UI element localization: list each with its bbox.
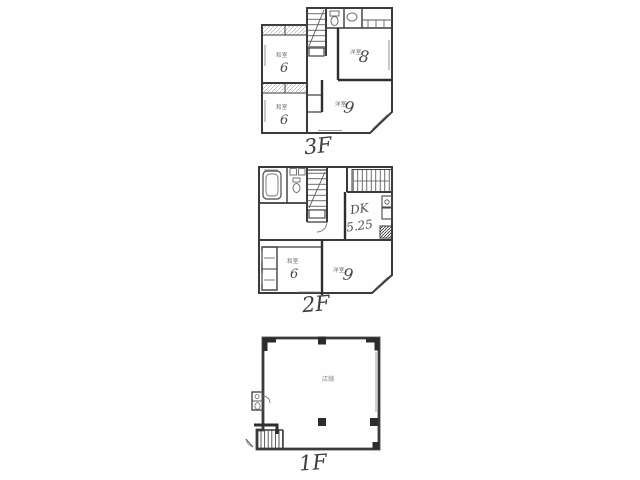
room-name-1f-store: 店舗 — [322, 375, 334, 383]
room-size-3f-washitsu-lower: 6 — [280, 113, 288, 128]
room-size-2f-yoshitsu-9: 9 — [342, 264, 355, 284]
room-size-3f-yoshitsu-8: 8 — [358, 47, 370, 67]
column-corner-top-right — [366, 338, 379, 351]
floor-label-1f: 1F — [298, 450, 329, 476]
column-corner-bottom-right — [373, 442, 380, 449]
toilet-2f — [293, 178, 300, 193]
room-size-3f-yoshitsu-9: 9 — [342, 97, 355, 117]
floor-plan-drawing: 和室 6 和室 6 洋室 8 洋室 9 3F — [0, 0, 640, 480]
stair-landing-3f — [309, 48, 324, 56]
floor-3f: 和室 6 和室 6 洋室 8 洋室 9 3F — [262, 8, 392, 159]
storage-box-2f — [380, 226, 392, 238]
stair-landing-2f — [309, 210, 325, 218]
washbasin-3f — [347, 13, 357, 21]
floor-label-2f: 2F — [300, 291, 332, 318]
stairs-1f — [257, 430, 283, 449]
stairs-2f-to-3f — [352, 170, 392, 193]
toilet-3f — [330, 11, 339, 26]
room-name-2f-dk: DK — [348, 200, 370, 217]
column-interior — [318, 418, 326, 426]
column-right — [370, 418, 378, 426]
room-name-3f-washitsu-upper: 和室 — [276, 51, 288, 59]
floor-plan-page: 和室 6 和室 6 洋室 8 洋室 9 3F — [0, 0, 640, 480]
toilet-1f — [252, 392, 270, 410]
column-corner-top-left — [263, 338, 276, 351]
closet-3f-lower — [262, 83, 307, 93]
balcony-3f — [362, 20, 392, 28]
door-arc-2f — [317, 222, 327, 232]
entry-door-1f — [246, 439, 253, 447]
closet-2f — [262, 247, 277, 290]
stairs-2f-main — [307, 170, 327, 218]
stairs-3f — [307, 8, 326, 56]
bathtub-2f — [263, 171, 281, 199]
room-size-2f-washitsu: 6 — [290, 267, 298, 282]
room-name-2f-washitsu: 和室 — [287, 257, 299, 265]
room-size-2f-dk: 5.25 — [345, 217, 373, 235]
room-size-3f-washitsu-upper: 6 — [280, 61, 288, 76]
kitchen-counter-2f — [382, 196, 392, 219]
closet-3f-upper — [262, 25, 307, 35]
floor-label-3f: 3F — [303, 132, 335, 159]
floor-2f: DK 5.25 和室 6 洋室 9 2F — [259, 167, 392, 317]
room-name-3f-washitsu-lower: 和室 — [276, 103, 288, 111]
column-top-middle — [318, 337, 326, 345]
laundry-fixtures-2f — [290, 169, 305, 176]
floor-1f: 店舗 1F — [246, 337, 379, 476]
